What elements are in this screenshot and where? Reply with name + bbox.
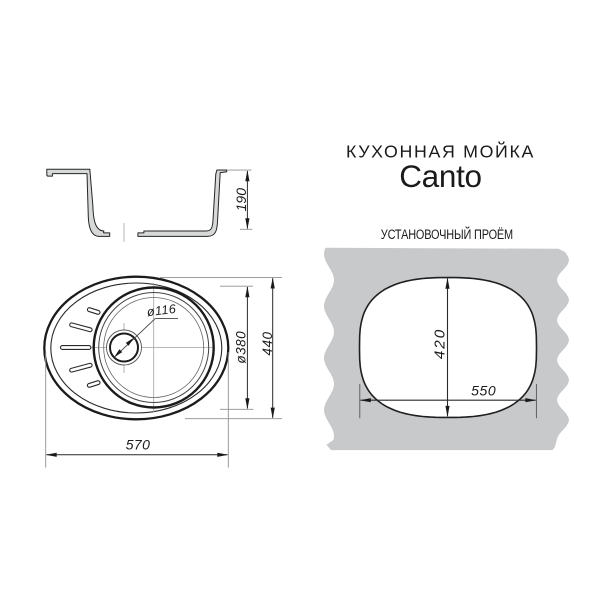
svg-text:420: 420	[431, 328, 448, 359]
svg-text:570: 570	[126, 437, 151, 453]
svg-text:УСТАНОВОЧНЫЙ ПРОЁМ: УСТАНОВОЧНЫЙ ПРОЁМ	[381, 226, 513, 243]
svg-text:190: 190	[233, 188, 249, 212]
svg-text:550: 550	[471, 382, 496, 398]
svg-text:440: 440	[260, 331, 275, 355]
svg-text:ø380: ø380	[234, 331, 249, 364]
svg-text:Canto: Canto	[399, 158, 482, 194]
